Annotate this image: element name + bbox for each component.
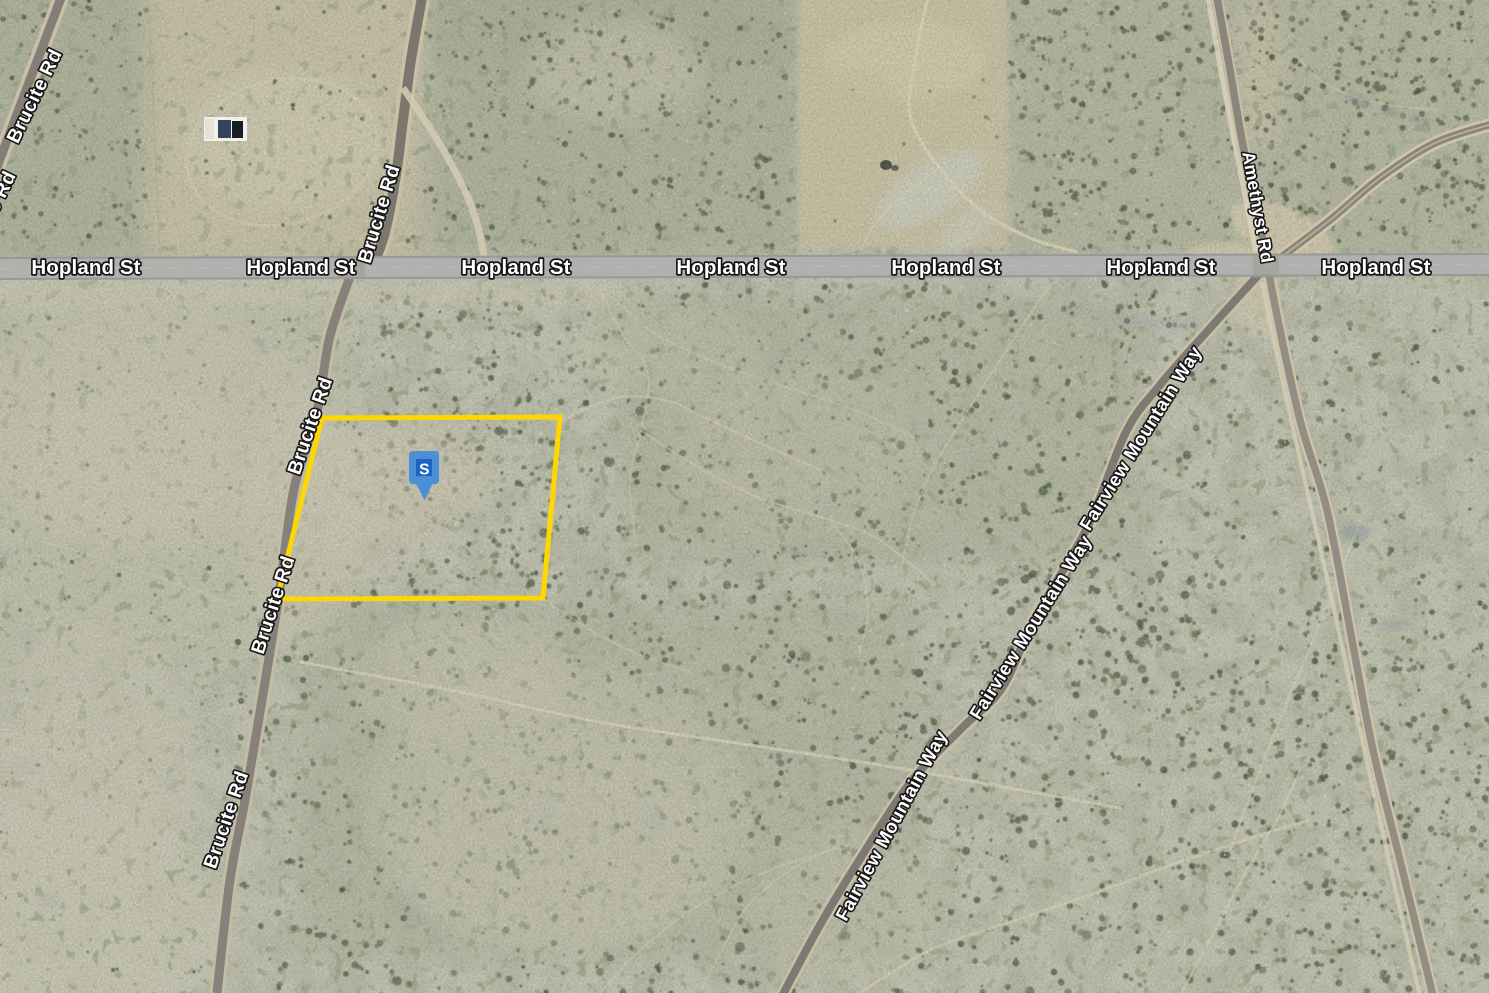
svg-text:Hopland St: Hopland St [31,256,140,279]
svg-text:Hopland St: Hopland St [461,256,570,279]
svg-text:Hopland St: Hopland St [1106,256,1215,279]
svg-text:S: S [419,462,429,479]
svg-text:Hopland St: Hopland St [1321,256,1430,279]
svg-text:Hopland St: Hopland St [676,256,785,279]
svg-text:Hopland St: Hopland St [246,256,355,279]
svg-text:Hopland St: Hopland St [891,256,1000,279]
